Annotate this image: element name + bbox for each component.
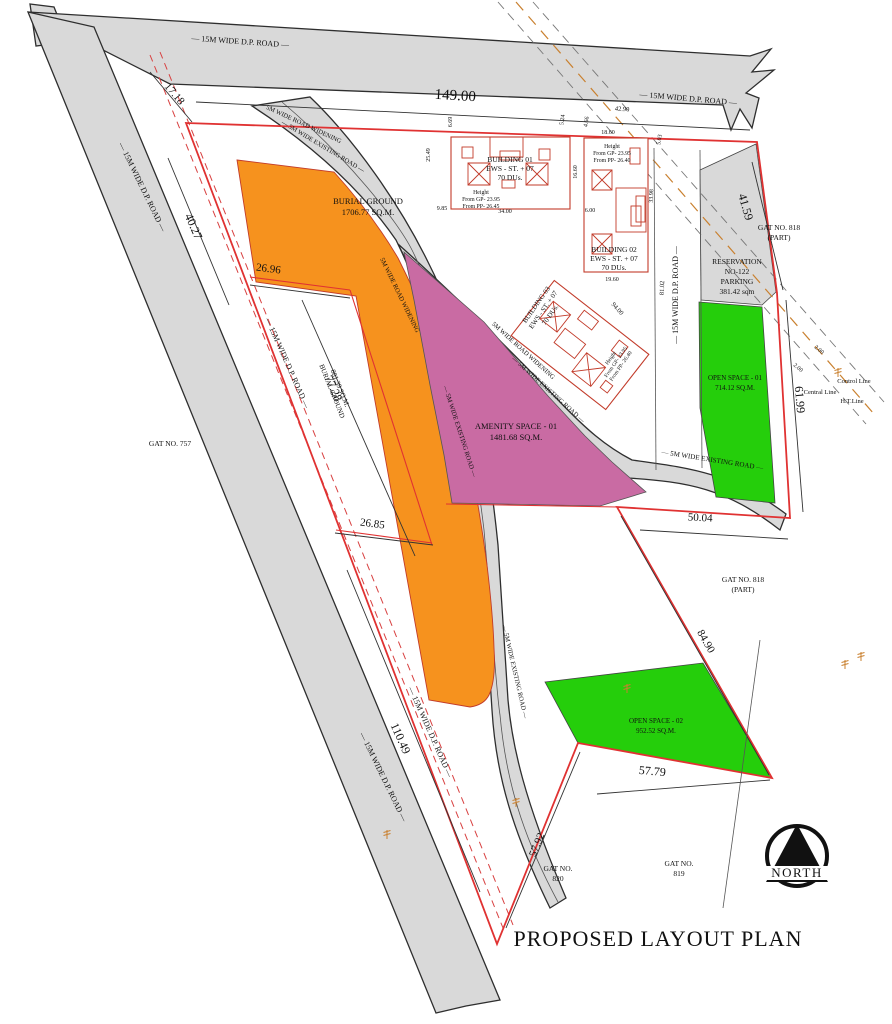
dim-26-85: 26.85 [359,517,386,532]
north-arrow-text: NORTH [771,865,823,880]
dim-2-00-b: 2.00 [792,363,804,374]
amenity-space-label: AMENITY SPACE - 01 [475,421,557,431]
gat-819-number: 819 [673,869,685,878]
road-label-dp15-vertical: — 15M WIDE D.P. ROAD — [671,245,680,345]
dim-5-24: 5.24 [559,114,566,125]
open-space-2-label: OPEN SPACE - 02 [629,717,684,725]
building-02-height-2: From GP- 23.95 [593,151,631,157]
burial-ground-area-value: 1706.77 SQ.M. [342,207,394,217]
burial-ground-label: BURIAL GROUND [333,196,403,206]
dim-19-60: 19.60 [605,277,619,283]
road-label-dp15-strip-upper: — 15M WIDE D.P. ROAD — [263,316,312,411]
utility-pole-icon [858,652,865,661]
layout-plan-canvas: — 15M WIDE D.P. ROAD — — 15M WIDE D.P. R… [0,0,892,1024]
dim-94-00: 94.00 [610,301,625,317]
dim-18-60: 18.60 [601,130,615,136]
gat-818-mid-part: (PART) [731,585,755,594]
dim-6-00: 6.00 [585,208,596,214]
reservation-label-2: NO-122 [725,267,750,276]
building-01-height-3: From PP- 26.45 [463,204,500,210]
reservation-label-4: 381.42 sqm [719,287,754,296]
gat-757-label: GAT NO. 757 [149,439,191,448]
building-02-name: BUILDING 02 [591,245,637,254]
building-02-height-1: Height [604,144,620,150]
gat-818-mid-label: GAT NO. 818 [722,575,764,584]
dim-40-27: 40.27 [182,211,206,241]
north-arrow: NORTH [763,824,831,886]
control-line-label: Control Line [837,378,871,385]
open-space-1-area-value: 714.12 SQ.M. [715,384,755,392]
utility-pole-icon [842,660,849,669]
gat-820-label: GAT NO. [543,864,572,873]
dim-5-03: 5.03 [656,134,664,145]
dim-25-49: 25.49 [426,148,432,162]
dim-42-90: 42.90 [615,106,630,114]
building-01-height-2: From GP- 23.95 [462,197,500,203]
reservation-label-3: PARKING [721,277,754,286]
dim-4-66: 4.66 [583,116,590,127]
gat-818-top-label: GAT NO. 818 [758,223,800,232]
building-02-spec: EWS - ST. + 07 [590,254,638,263]
dim-line-57-79 [597,780,770,794]
building-01-name: BUILDING 01 [487,155,533,164]
dim-57-79: 57.79 [638,763,666,779]
building-02-height-3: From PP- 26.40 [594,158,631,164]
gat-818-top-part: (PART) [767,233,791,242]
reservation-label-1: RESERVATION [712,257,762,266]
dim-77-28: 77.28 [322,373,346,403]
dim-line-50-04 [640,530,788,539]
gat-819-label: GAT NO. [664,859,693,868]
dim-16-60: 16.60 [573,165,579,179]
dim-84-90: 84.90 [694,628,717,656]
central-line-label: Central Line [804,389,837,396]
page-title: PROPOSED LAYOUT PLAN [514,926,803,951]
open-space-1-area [699,302,775,503]
open-space-2-area-value: 952.52 SQ.M. [636,727,676,735]
dim-81-02: 81.02 [659,281,667,296]
open-space-1-label: OPEN SPACE - 01 [708,374,763,382]
dim-50-04: 50.04 [687,511,713,524]
building-01-units: 70 DUs. [497,173,522,182]
building-02-units: 70 DUs. [601,263,626,272]
gat-820-number: 820 [552,874,564,883]
dim-149-00: 149.00 [434,87,476,105]
building-01-spec: EWS - ST. + 07 [486,164,534,173]
dim-34-00: 34.00 [498,209,512,215]
dim-33-98: 33.98 [649,189,655,203]
building-01-height-1: Height [473,190,489,196]
dim-9-85: 9.85 [437,206,448,212]
dim-2-00-a: 2.00 [813,345,825,356]
ht-line-label: H.T.Line [840,398,863,405]
amenity-space-area-value: 1481.68 SQ.M. [490,432,542,442]
dim-6-69: 6.69 [448,117,454,128]
